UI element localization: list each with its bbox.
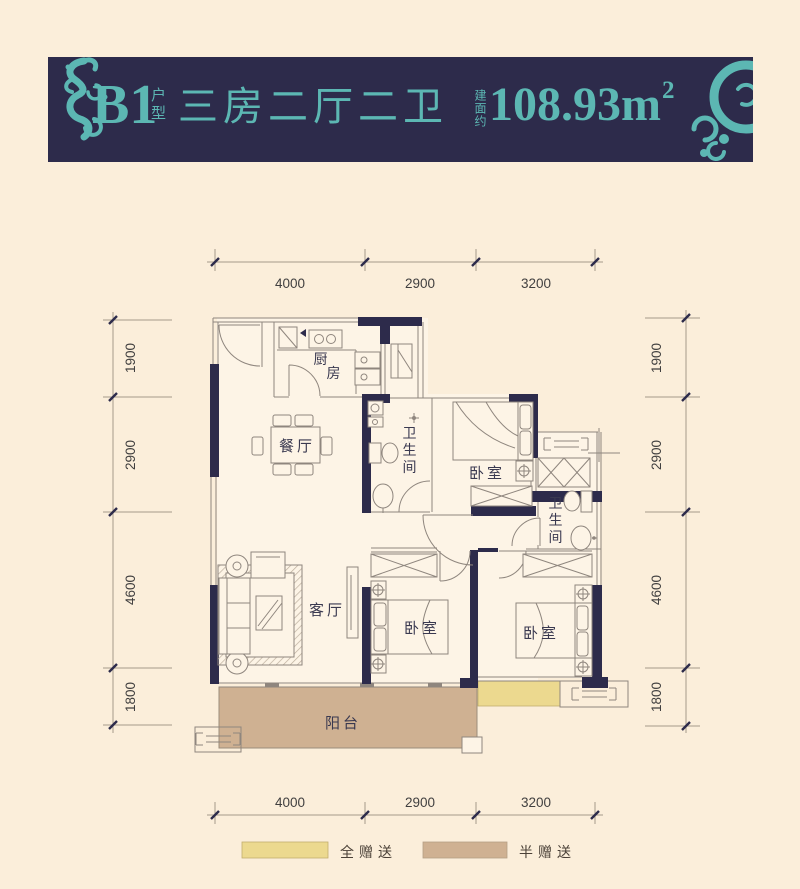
- dim-left-0: 1900: [123, 343, 138, 373]
- legend: 全赠送 半赠送: [242, 842, 576, 861]
- room-label-balcony: 阳台: [325, 715, 361, 732]
- dimension-right: 1900 2900 4600 1800: [645, 310, 700, 733]
- dim-top-2: 3200: [521, 276, 551, 291]
- dim-left-1: 2900: [123, 440, 138, 470]
- gift-full-strip: [478, 681, 560, 706]
- legend-swatch-full: [242, 842, 328, 858]
- floorplan-page: 4000 2900 3200 4000 2900 3200 1900 2900 …: [0, 0, 800, 889]
- room-label-bedroom-mid: 卧室: [404, 620, 440, 637]
- legend-swatch-half: [423, 842, 507, 858]
- area-number: 108.93: [489, 78, 621, 131]
- dim-right-1: 2900: [649, 440, 664, 470]
- legend-label-half: 半赠送: [519, 845, 576, 861]
- area-unit: m: [621, 78, 661, 131]
- legend-label-full: 全赠送: [340, 844, 397, 861]
- dim-top-1: 2900: [405, 276, 435, 291]
- dim-left-2: 4600: [123, 575, 138, 605]
- room-label-bath-top: 卫生间: [403, 425, 418, 475]
- room-label-bedroom-right: 卧室: [523, 625, 559, 642]
- layout-text: 三房二厅二卫: [178, 83, 448, 131]
- round-dragon-ornament-icon: [680, 57, 753, 162]
- dimension-left: 1900 2900 4600 1800: [103, 312, 172, 733]
- dim-bottom-0: 4000: [275, 795, 305, 810]
- dim-right-0: 1900: [649, 343, 664, 373]
- dimension-bottom: 4000 2900 3200: [207, 795, 603, 824]
- dim-top-0: 4000: [275, 276, 305, 291]
- dim-left-3: 1800: [123, 682, 138, 712]
- dim-right-2: 4600: [649, 575, 664, 605]
- dimension-top: 4000 2900 3200: [207, 249, 603, 291]
- bedroom-right-furniture: [516, 554, 592, 676]
- area-value: 108.93m2: [489, 77, 673, 141]
- dim-bottom-1: 2900: [405, 795, 435, 810]
- room-label-bedroom-top: 卧室: [469, 465, 505, 482]
- header-banner: B1 户型 三房二厅二卫 建面约 108.93m2: [48, 57, 753, 162]
- room-label-dining: 餐厅: [279, 438, 315, 455]
- room-label-bath-right: 卫生间: [549, 495, 564, 545]
- dim-right-3: 1800: [649, 682, 664, 712]
- dim-bottom-2: 3200: [521, 795, 551, 810]
- area-superscript: 2: [662, 77, 675, 104]
- unit-suffix: 户型: [147, 87, 168, 129]
- area-prefix: 建面约: [473, 89, 487, 135]
- room-label-living: 客厅: [309, 602, 345, 619]
